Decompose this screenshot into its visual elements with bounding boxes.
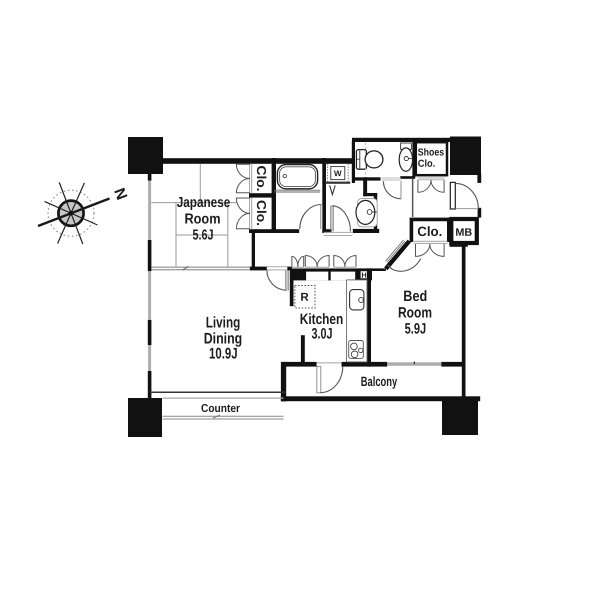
svg-text:5.6J: 5.6J — [192, 227, 213, 243]
svg-text:Clo.: Clo. — [254, 200, 269, 226]
svg-text:10.9J: 10.9J — [209, 345, 238, 362]
svg-text:5.9J: 5.9J — [405, 320, 427, 337]
svg-text:Clo.: Clo. — [418, 159, 436, 170]
svg-text:H: H — [361, 271, 366, 280]
svg-text:Room: Room — [184, 211, 220, 227]
svg-text:MB: MB — [455, 227, 472, 239]
svg-text:Japanese: Japanese — [177, 195, 231, 211]
svg-text:Counter: Counter — [201, 403, 240, 415]
svg-text:Room: Room — [398, 304, 432, 321]
svg-text:Shoes: Shoes — [418, 147, 445, 158]
svg-text:Balcony: Balcony — [361, 374, 398, 389]
svg-text:Clo.: Clo. — [254, 166, 269, 192]
svg-text:Living: Living — [206, 314, 241, 331]
svg-text:Clo.: Clo. — [417, 224, 442, 239]
svg-text:R: R — [300, 292, 309, 304]
svg-text:Bed: Bed — [403, 288, 427, 305]
svg-text:W: W — [334, 169, 342, 178]
svg-text:3.0J: 3.0J — [311, 325, 332, 342]
